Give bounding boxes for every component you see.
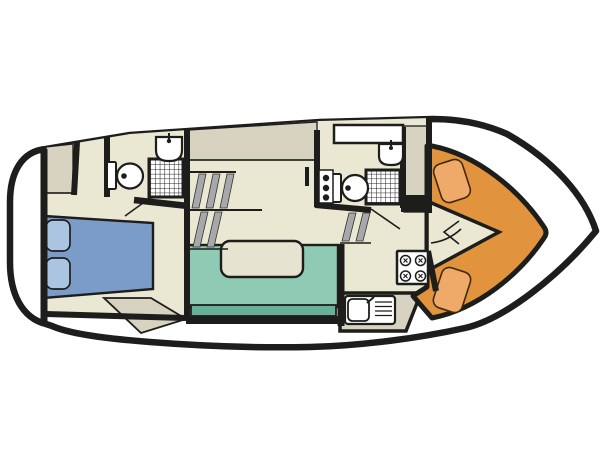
sofa-front-edge (191, 305, 336, 316)
stern-wardrobe (46, 144, 73, 193)
basin-fwd (379, 140, 403, 165)
stern-divider-wall (74, 142, 77, 195)
utility-panel-dots (319, 170, 333, 203)
door-jamb (305, 167, 309, 186)
toilet-aft (107, 162, 143, 189)
aft-cabin (44, 216, 153, 298)
cabinet-end-block (401, 195, 430, 212)
toilet-fwd (331, 174, 368, 202)
port-side-wall-aft (46, 314, 186, 318)
floor-plan-canvas (0, 0, 605, 454)
saloon (188, 241, 338, 316)
step-treads-upper (192, 174, 234, 208)
boat-floor-plan (0, 0, 605, 454)
stove (397, 251, 428, 284)
pillow-bottom (46, 258, 70, 289)
basin-aft (156, 133, 182, 161)
galley-sink (345, 296, 395, 324)
shower-aft-grid (149, 159, 183, 197)
pillow-top (46, 220, 70, 251)
shower-fwd-grid (366, 170, 400, 204)
roof-window (334, 125, 403, 143)
saloon-table (221, 241, 303, 277)
